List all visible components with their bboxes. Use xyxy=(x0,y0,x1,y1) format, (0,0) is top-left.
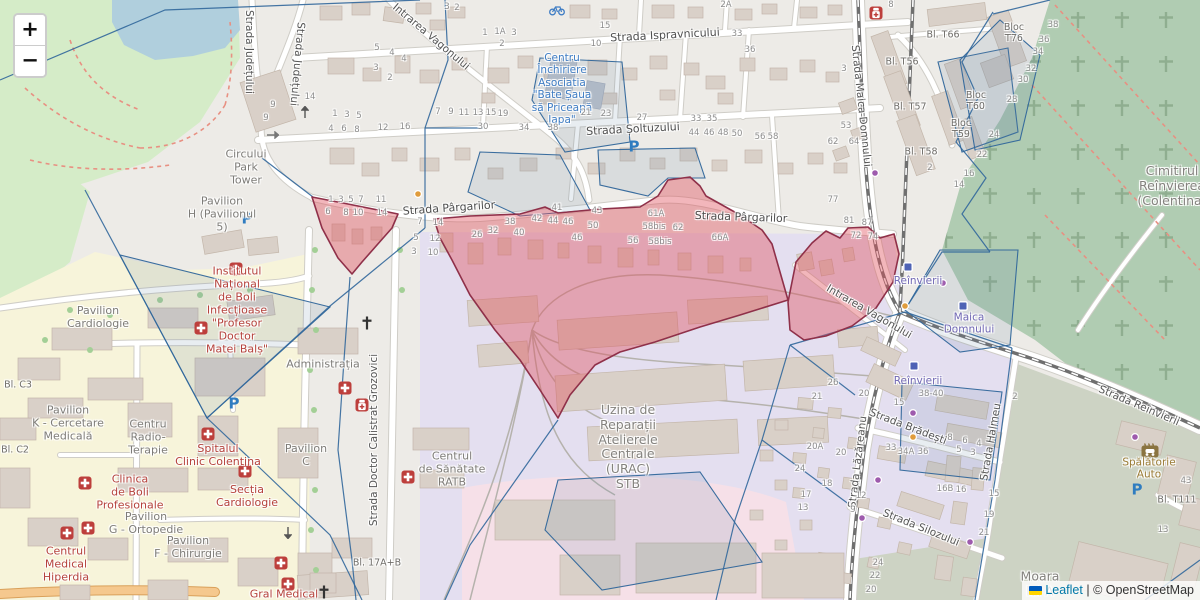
map-canvas[interactable]: PPPP Strada IspravniculuiStrada Șoltuzul… xyxy=(0,0,1200,600)
attribution-bar: Leaflet | © OpenStreetMap xyxy=(1022,581,1200,600)
attribution-separator: | xyxy=(1083,583,1093,597)
leaflet-link[interactable]: Leaflet xyxy=(1045,583,1083,597)
zoom-out-button[interactable]: − xyxy=(15,46,45,76)
basemap-tiles xyxy=(0,0,1200,600)
ukraine-flag-icon xyxy=(1029,586,1042,595)
openstreetmap-link[interactable]: © OpenStreetMap xyxy=(1093,583,1194,597)
zoom-control: + − xyxy=(13,13,47,78)
zoom-in-button[interactable]: + xyxy=(15,15,45,46)
